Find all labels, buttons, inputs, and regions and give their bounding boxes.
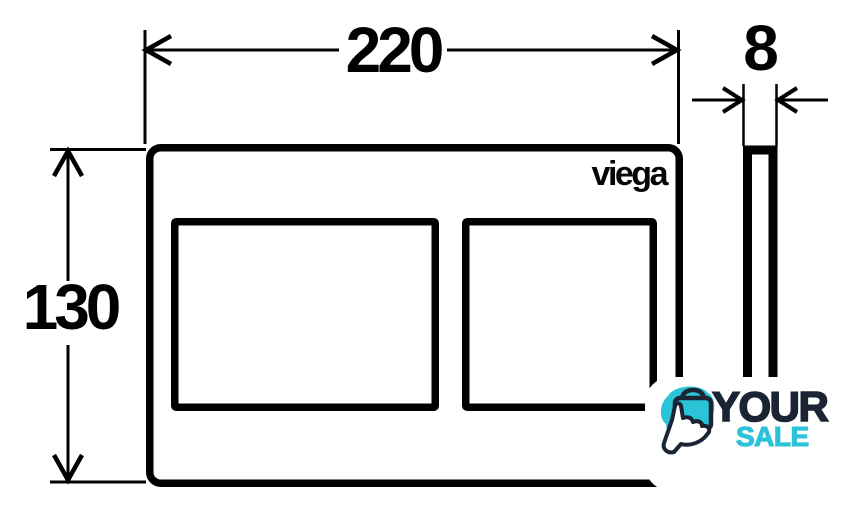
depth-dimension-label: 8 xyxy=(689,16,829,80)
height-dimension-label: 130 xyxy=(0,275,140,339)
viega-logo-text: viega xyxy=(570,157,666,191)
width-dimension-label: 220 xyxy=(323,18,463,82)
right-flush-button xyxy=(466,222,654,408)
left-flush-button xyxy=(175,222,436,408)
watermark-text-sale: SALE xyxy=(736,423,809,451)
dimension-drawing: 220 130 8 viega YOUR SALE xyxy=(0,0,862,525)
